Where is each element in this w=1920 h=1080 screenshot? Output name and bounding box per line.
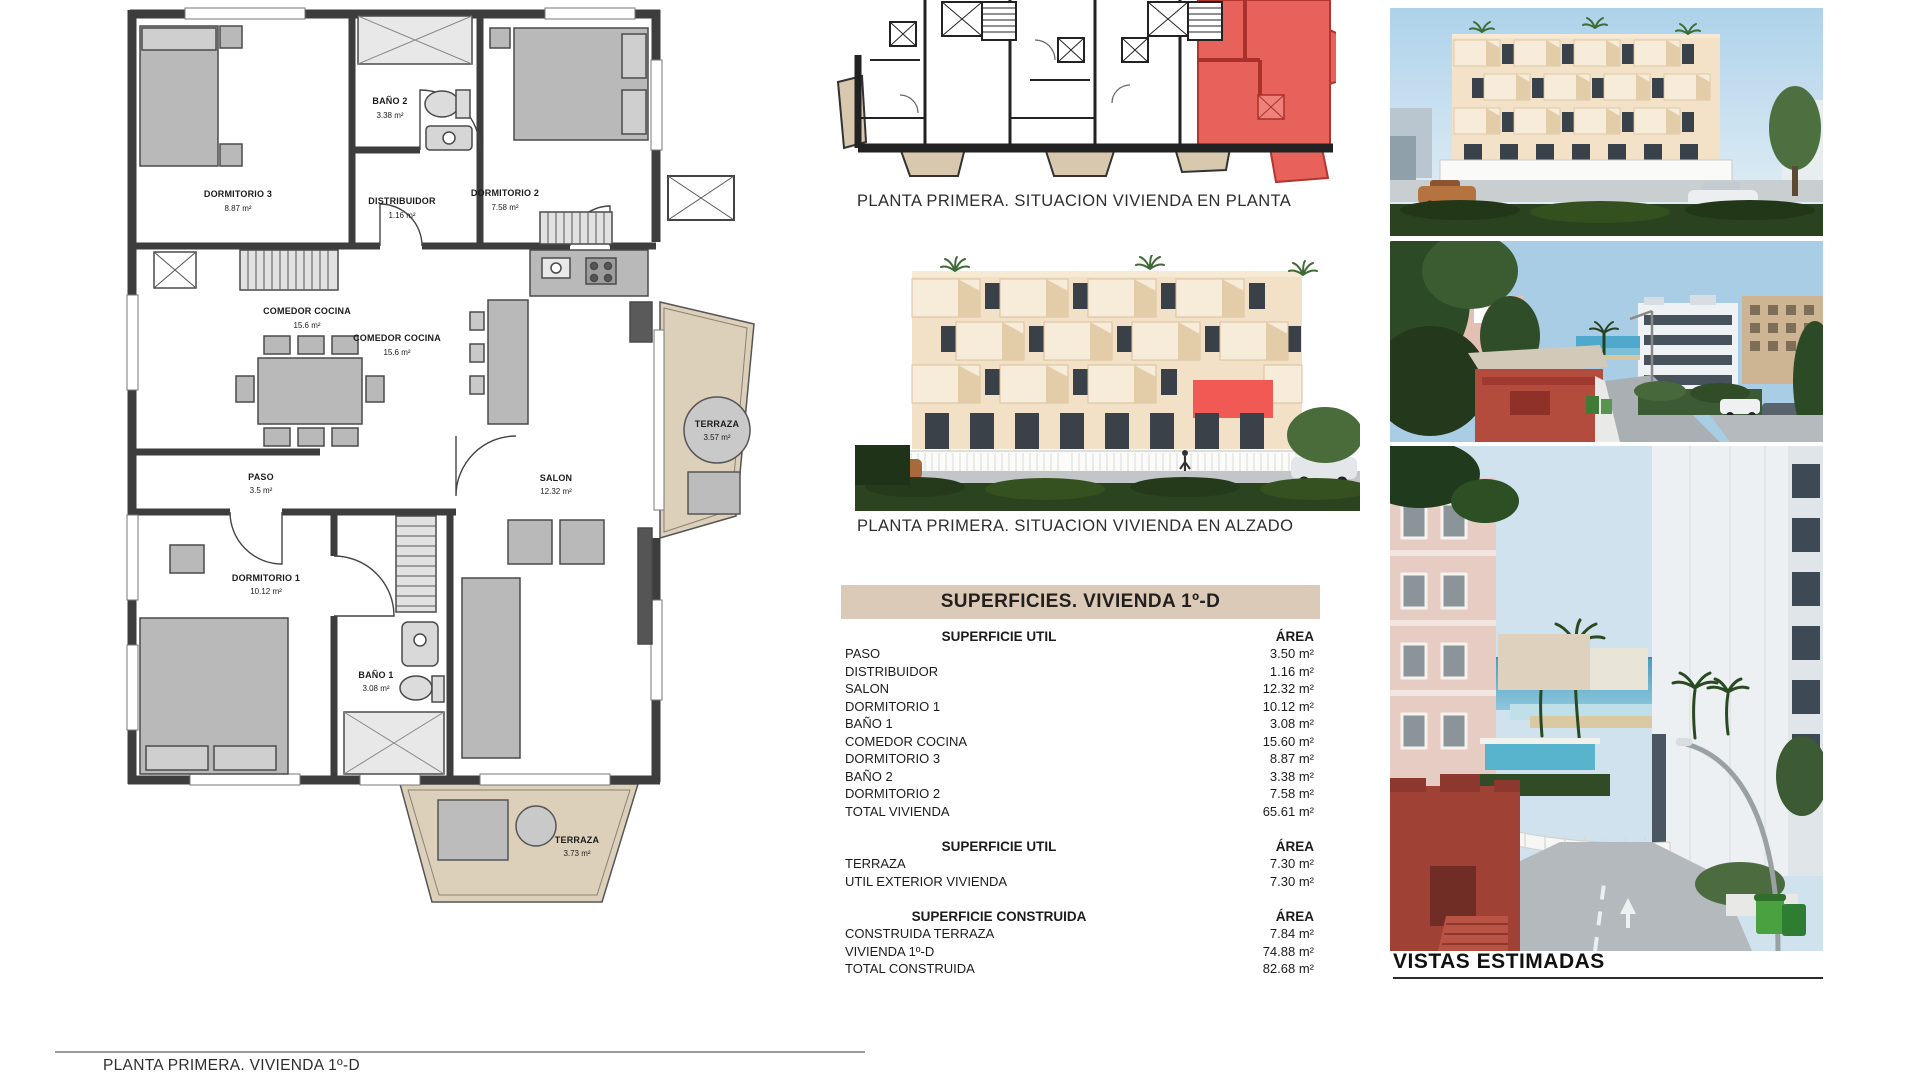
- table-row: TOTAL VIVIENDA65.61 m²: [841, 803, 1320, 821]
- row-value: 65.61 m²: [1224, 804, 1320, 819]
- table-row: TERRAZA7.30 m²: [841, 855, 1320, 873]
- row-value: 3.08 m²: [1224, 716, 1320, 731]
- room-area: 1.16 m²: [388, 211, 415, 220]
- table-row: COMEDOR COCINA15.60 m²: [841, 733, 1320, 751]
- main-building: [1452, 18, 1720, 176]
- room-area: 12.32 m²: [540, 487, 572, 496]
- table-row: BAÑO 23.38 m²: [841, 768, 1320, 786]
- photo-sea-road-view: [1390, 446, 1823, 951]
- row-value: 15.60 m²: [1224, 734, 1320, 749]
- room-label: DORMITORIO 2: [471, 188, 539, 198]
- row-value: 7.30 m²: [1224, 874, 1320, 889]
- row-value: 82.68 m²: [1224, 961, 1320, 976]
- photo-street-sea-view: [1390, 241, 1823, 442]
- room-area: 3.08 m²: [362, 684, 389, 693]
- superficies-title: SUPERFICIES. VIVIENDA 1º-D: [941, 591, 1221, 613]
- table-row: DORMITORIO 27.58 m²: [841, 785, 1320, 803]
- room-label: TERRAZA: [695, 419, 740, 429]
- room-label: PASO: [248, 472, 274, 482]
- key-plan: [830, 0, 1336, 186]
- vistas-estimadas-title: VISTAS ESTIMADAS: [1393, 950, 1605, 974]
- row-label: TOTAL VIVIENDA: [841, 804, 1224, 819]
- fence-slats: [897, 453, 1317, 471]
- photo-building-render: [1390, 8, 1823, 236]
- plan-sheet: { "page": { "bottom_caption": "PLANTA PR…: [0, 0, 1920, 1080]
- area-column-header: ÁREA: [1157, 909, 1320, 924]
- sheet-title: PLANTA PRIMERA. VIVIENDA 1º-D: [103, 1057, 360, 1075]
- fence: [1440, 160, 1732, 182]
- section-title: SUPERFICIE CONSTRUIDA: [841, 909, 1157, 924]
- superficie-util-section: SUPERFICIE UTIL ÁREA PASO3.50 m² DISTRIB…: [841, 627, 1320, 820]
- table-row: SALON12.32 m²: [841, 680, 1320, 698]
- row-value: 10.12 m²: [1224, 699, 1320, 714]
- table-row: CONSTRUIDA TERRAZA7.84 m²: [841, 925, 1320, 943]
- row-label: DISTRIBUIDOR: [841, 664, 1224, 679]
- section-header: SUPERFICIE UTIL ÁREA: [841, 627, 1320, 645]
- row-label: UTIL EXTERIOR VIVIENDA: [841, 874, 1224, 889]
- row-label: DORMITORIO 1: [841, 699, 1224, 714]
- table-row: BAÑO 13.08 m²: [841, 715, 1320, 733]
- section-header: SUPERFICIE UTIL ÁREA: [841, 837, 1320, 855]
- red-brick-gate: [1390, 774, 1520, 951]
- room-label: COMEDOR COCINA: [353, 333, 441, 343]
- superficies-table: SUPERFICIES. VIVIENDA 1º-D SUPERFICIE UT…: [841, 585, 1320, 978]
- row-label: BAÑO 2: [841, 769, 1224, 784]
- elevation-render: [855, 255, 1360, 511]
- table-row: PASO3.50 m²: [841, 645, 1320, 663]
- room-label: BAÑO 1: [358, 670, 393, 680]
- key-plan-caption: PLANTA PRIMERA. SITUACION VIVIENDA EN PL…: [857, 192, 1291, 211]
- table-row: DISTRIBUIDOR1.16 m²: [841, 663, 1320, 681]
- room-label: DISTRIBUIDOR: [368, 196, 436, 206]
- area-column-header: ÁREA: [1157, 629, 1320, 644]
- table-row: DORMITORIO 38.87 m²: [841, 750, 1320, 768]
- room-area: 10.12 m²: [250, 587, 282, 596]
- row-label: COMEDOR COCINA: [841, 734, 1224, 749]
- red-unit-elevation-highlight: [1193, 380, 1273, 418]
- row-value: 7.30 m²: [1224, 856, 1320, 871]
- room-area: 3.38 m²: [376, 111, 403, 120]
- section-header: SUPERFICIE CONSTRUIDA ÁREA: [841, 907, 1320, 925]
- row-value: 3.50 m²: [1224, 646, 1320, 661]
- red-roof-structure: [1468, 345, 1608, 442]
- table-row: UTIL EXTERIOR VIVIENDA7.30 m²: [841, 873, 1320, 891]
- vistas-underline: [1393, 977, 1823, 979]
- cross-box: [154, 252, 196, 288]
- row-label: VIVIENDA 1º-D: [841, 944, 1224, 959]
- row-value: 12.32 m²: [1224, 681, 1320, 696]
- exterior-unit-box: [668, 176, 734, 220]
- row-label: SALON: [841, 681, 1224, 696]
- room-label: SALON: [540, 473, 573, 483]
- room-area: 3.57 m²: [703, 433, 730, 442]
- row-label: TERRAZA: [841, 856, 1224, 871]
- title-block-line: [55, 1051, 865, 1053]
- row-value: 3.38 m²: [1224, 769, 1320, 784]
- row-value: 74.88 m²: [1224, 944, 1320, 959]
- striped-wardrobe-b: [540, 212, 612, 244]
- striped-wardrobe-c: [396, 516, 436, 612]
- elevation-caption: PLANTA PRIMERA. SITUACION VIVIENDA EN AL…: [857, 517, 1293, 536]
- room-area: 15.6 m²: [383, 348, 410, 357]
- row-value: 7.84 m²: [1224, 926, 1320, 941]
- room-area: 3.73 m²: [563, 849, 590, 858]
- superficie-util-exterior-section: SUPERFICIE UTIL ÁREA TERRAZA7.30 m² UTIL…: [841, 837, 1320, 890]
- row-label: PASO: [841, 646, 1224, 661]
- section-title: SUPERFICIE UTIL: [841, 629, 1157, 644]
- room-area: 15.6 m²: [293, 321, 320, 330]
- section-title: SUPERFICIE UTIL: [841, 839, 1157, 854]
- room-label: TERRAZA: [555, 835, 600, 845]
- row-label: CONSTRUIDA TERRAZA: [841, 926, 1224, 941]
- table-row: TOTAL CONSTRUIDA82.68 m²: [841, 960, 1320, 978]
- table-row: DORMITORIO 110.12 m²: [841, 698, 1320, 716]
- room-label: BAÑO 2: [372, 96, 407, 106]
- room-label: DORMITORIO 3: [204, 189, 272, 199]
- building: [912, 255, 1317, 449]
- striped-wardrobe-a: [240, 250, 338, 290]
- row-label: BAÑO 1: [841, 716, 1224, 731]
- row-label: TOTAL CONSTRUIDA: [841, 961, 1224, 976]
- superficies-title-bar: SUPERFICIES. VIVIENDA 1º-D: [841, 585, 1320, 619]
- room-area: 3.5 m²: [250, 486, 273, 495]
- room-area: 7.58 m²: [491, 203, 518, 212]
- terrace-bottom: [400, 784, 638, 902]
- apartment-floor-plan: DORMITORIO 3 8.87 m² BAÑO 2 3.38 m² DIST…: [90, 0, 770, 1080]
- row-value: 1.16 m²: [1224, 664, 1320, 679]
- area-column-header: ÁREA: [1157, 839, 1320, 854]
- row-value: 8.87 m²: [1224, 751, 1320, 766]
- row-label: DORMITORIO 2: [841, 786, 1224, 801]
- table-row: VIVIENDA 1º-D74.88 m²: [841, 943, 1320, 961]
- room-area: 8.87 m²: [224, 204, 251, 213]
- row-value: 7.58 m²: [1224, 786, 1320, 801]
- room-label: DORMITORIO 1: [232, 573, 300, 583]
- row-label: DORMITORIO 3: [841, 751, 1224, 766]
- room-label: COMEDOR COCINA: [263, 306, 351, 316]
- furniture: [140, 16, 734, 774]
- superficie-construida-section: SUPERFICIE CONSTRUIDA ÁREA CONSTRUIDA TE…: [841, 907, 1320, 978]
